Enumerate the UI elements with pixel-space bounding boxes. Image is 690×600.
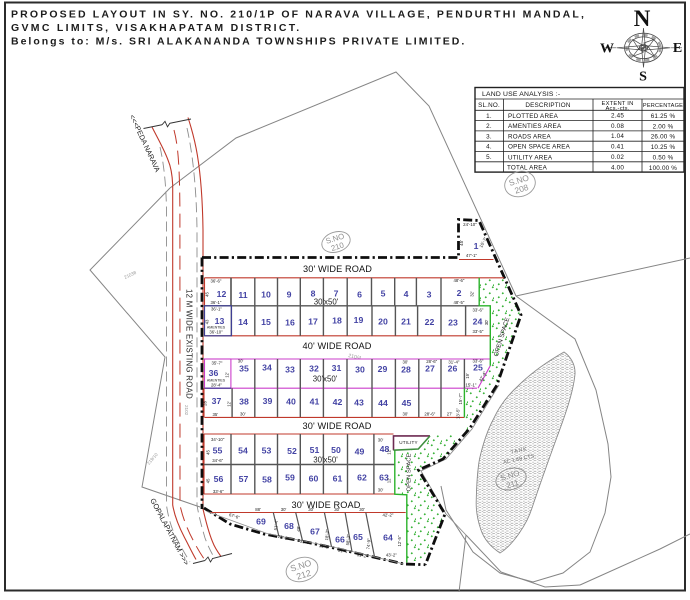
svg-text:30' WIDE ROAD: 30' WIDE ROAD	[303, 264, 372, 274]
svg-text:19': 19'	[465, 373, 470, 379]
svg-text:12': 12'	[225, 372, 230, 378]
svg-text:36'-6": 36'-6"	[211, 279, 222, 284]
svg-text:DESCRIPTION: DESCRIPTION	[525, 102, 570, 109]
svg-text:30': 30'	[402, 412, 408, 417]
svg-text:33'-5": 33'-5"	[473, 329, 484, 334]
svg-text:12': 12'	[227, 401, 232, 407]
svg-text:2102: 2102	[184, 405, 189, 416]
svg-text:28: 28	[401, 365, 411, 375]
svg-text:30': 30'	[240, 412, 246, 417]
svg-text:2: 2	[457, 288, 462, 298]
svg-text:24: 24	[473, 317, 483, 327]
svg-text:45: 45	[206, 478, 211, 483]
svg-text:45': 45'	[459, 240, 464, 246]
svg-text:28'-6": 28'-6"	[424, 412, 435, 417]
svg-text:30': 30'	[308, 507, 314, 512]
svg-text:45: 45	[402, 398, 412, 408]
svg-text:48'-6": 48'-6"	[454, 278, 465, 283]
svg-text:28'-4": 28'-4"	[211, 383, 222, 388]
svg-text:30: 30	[355, 365, 365, 375]
svg-text:26.00 %: 26.00 %	[651, 133, 676, 140]
svg-text:100.00 %: 100.00 %	[649, 165, 677, 172]
svg-text:66: 66	[335, 535, 345, 545]
svg-text:17: 17	[308, 317, 318, 327]
svg-text:30': 30'	[281, 507, 287, 512]
svg-text:41: 41	[310, 397, 320, 407]
svg-text:45: 45	[205, 292, 210, 297]
svg-text:61.25 %: 61.25 %	[651, 113, 676, 120]
svg-text:12'-5": 12'-5"	[397, 535, 402, 546]
svg-text:38: 38	[239, 397, 249, 407]
svg-text:33'-6": 33'-6"	[473, 308, 484, 313]
svg-text:14: 14	[238, 317, 248, 327]
svg-text:51: 51	[310, 445, 320, 455]
svg-text:33'-6": 33'-6"	[473, 359, 484, 364]
svg-text:53: 53	[262, 446, 272, 456]
svg-text:45: 45	[206, 450, 211, 455]
svg-text:37: 37	[212, 396, 222, 406]
svg-text:30' WIDE ROAD: 30' WIDE ROAD	[303, 421, 372, 431]
svg-text:42'-2": 42'-2"	[383, 513, 394, 518]
svg-text:ROADS AREA: ROADS AREA	[508, 133, 552, 140]
svg-text:11: 11	[238, 290, 247, 300]
svg-text:12': 12'	[387, 478, 392, 484]
svg-text:2.00 %: 2.00 %	[653, 124, 674, 131]
svg-text:29: 29	[378, 364, 388, 374]
svg-text:18'-2": 18'-2"	[324, 529, 330, 541]
svg-text:TOTAL AREA: TOTAL AREA	[507, 165, 548, 172]
svg-text:34: 34	[262, 363, 272, 373]
svg-text:12: 12	[217, 289, 227, 299]
svg-text:28'-6": 28'-6"	[426, 359, 437, 364]
svg-text:13: 13	[215, 316, 225, 326]
svg-text:36'-1": 36'-1"	[211, 300, 222, 305]
svg-text:54: 54	[238, 446, 248, 456]
svg-text:E: E	[673, 41, 682, 56]
svg-text:12 M WIDE EXISTING ROAD: 12 M WIDE EXISTING ROAD	[185, 289, 194, 399]
svg-text:24'-10": 24'-10"	[463, 222, 477, 227]
svg-text:61: 61	[333, 474, 343, 484]
svg-text:68: 68	[284, 521, 294, 531]
svg-text:S: S	[639, 70, 647, 85]
svg-text:31: 31	[332, 363, 342, 373]
svg-text:40' WIDE ROAD: 40' WIDE ROAD	[303, 341, 372, 351]
svg-text:22: 22	[425, 317, 435, 327]
svg-text:4.00: 4.00	[611, 164, 624, 171]
svg-text:3: 3	[427, 290, 432, 300]
svg-text:58'-3": 58'-3"	[345, 534, 351, 546]
svg-text:W: W	[600, 42, 614, 57]
svg-text:52: 52	[287, 446, 297, 456]
svg-text:0.41: 0.41	[611, 143, 624, 150]
svg-text:43: 43	[354, 398, 364, 408]
svg-text:12': 12'	[387, 449, 392, 455]
svg-text:30'x50': 30'x50'	[313, 375, 338, 384]
svg-text:27': 27'	[447, 412, 453, 417]
svg-text:30'x50': 30'x50'	[314, 298, 339, 307]
svg-text:88': 88'	[255, 507, 261, 512]
svg-text:51'-4": 51'-4"	[273, 519, 279, 531]
svg-text:AMENTIES AREA: AMENTIES AREA	[508, 123, 562, 130]
svg-text:4.: 4.	[486, 143, 492, 150]
svg-text:35': 35'	[212, 412, 218, 417]
svg-text:N: N	[634, 6, 651, 31]
svg-text:27: 27	[425, 364, 435, 374]
svg-text:0.08: 0.08	[611, 123, 624, 130]
svg-text:49: 49	[355, 447, 365, 457]
svg-text:1.: 1.	[486, 113, 492, 120]
svg-text:34'-10": 34'-10"	[211, 437, 225, 442]
svg-text:31'-4": 31'-4"	[448, 360, 459, 365]
svg-text:1.04: 1.04	[611, 133, 624, 140]
svg-text:36'-10": 36'-10"	[209, 330, 223, 335]
svg-text:GVMC LIMITS, VISAKHAPATAM DIST: GVMC LIMITS, VISAKHAPATAM DISTRICT.	[11, 22, 302, 34]
svg-text:40: 40	[286, 397, 296, 407]
svg-text:48': 48'	[296, 526, 301, 532]
svg-text:30'x50': 30'x50'	[313, 456, 338, 465]
svg-text:5.: 5.	[486, 154, 492, 161]
svg-text:PERCENTAGE: PERCENTAGE	[643, 103, 683, 109]
svg-text:60: 60	[309, 474, 319, 484]
svg-text:21: 21	[401, 317, 411, 327]
svg-text:62: 62	[357, 473, 367, 483]
svg-text:PROPOSED LAYOUT IN SY. NO. 210: PROPOSED LAYOUT IN SY. NO. 210/1P OF NAR…	[11, 8, 586, 20]
svg-text:UTILITY: UTILITY	[399, 440, 418, 445]
svg-text:15: 15	[261, 317, 271, 327]
svg-text:39: 39	[263, 396, 273, 406]
svg-text:42: 42	[333, 397, 343, 407]
svg-text:65: 65	[353, 532, 363, 542]
svg-text:30': 30'	[378, 488, 384, 493]
svg-text:15'-1": 15'-1"	[466, 383, 477, 388]
svg-text:0.50 %: 0.50 %	[653, 155, 674, 162]
svg-text:26: 26	[448, 364, 458, 374]
svg-text:OPEN SPACE AREA: OPEN SPACE AREA	[508, 144, 571, 151]
svg-text:36'-1": 36'-1"	[211, 307, 222, 312]
svg-text:59: 59	[285, 473, 295, 483]
svg-text:57: 57	[239, 474, 249, 484]
svg-text:UTILITY AREA: UTILITY AREA	[508, 155, 553, 162]
svg-text:19: 19	[354, 315, 364, 325]
svg-text:44: 44	[378, 398, 388, 408]
svg-text:58: 58	[262, 475, 272, 485]
svg-text:PLOTTED AREA: PLOTTED AREA	[508, 113, 559, 120]
svg-text:43'-2": 43'-2"	[386, 553, 397, 558]
svg-text:4: 4	[404, 289, 409, 299]
svg-text:10: 10	[261, 290, 271, 300]
svg-text:23: 23	[448, 318, 458, 328]
svg-text:30': 30'	[484, 320, 489, 326]
svg-text:36: 36	[209, 368, 219, 378]
svg-text:33: 33	[285, 365, 295, 375]
svg-text:30': 30'	[359, 507, 365, 512]
svg-text:30' WIDE ROAD: 30' WIDE ROAD	[292, 500, 361, 510]
svg-text:35: 35	[239, 364, 249, 374]
svg-text:43: 43	[205, 319, 210, 324]
svg-text:55: 55	[213, 446, 223, 456]
svg-text:0.02: 0.02	[611, 154, 624, 161]
svg-text:67: 67	[310, 527, 320, 537]
svg-text:30': 30'	[378, 438, 384, 443]
svg-text:30': 30'	[334, 507, 340, 512]
svg-text:32': 32'	[470, 291, 475, 297]
svg-text:56: 56	[214, 474, 224, 484]
svg-text:16: 16	[285, 318, 295, 328]
svg-text:35'-7": 35'-7"	[212, 361, 223, 366]
svg-text:LAND USE ANALYSIS :-: LAND USE ANALYSIS :-	[482, 91, 560, 98]
svg-text:10.25 %: 10.25 %	[651, 144, 676, 151]
svg-text:30': 30'	[238, 359, 244, 364]
svg-text:74'-9": 74'-9"	[366, 538, 372, 550]
svg-text:3.: 3.	[486, 133, 492, 140]
svg-text:OPEN SPACE: OPEN SPACE	[407, 454, 413, 492]
svg-text:33'-6": 33'-6"	[213, 489, 224, 494]
svg-text:32: 32	[309, 364, 319, 374]
svg-text:47'-1": 47'-1"	[466, 253, 478, 258]
svg-text:28: 28	[203, 401, 208, 406]
svg-text:5: 5	[381, 289, 386, 299]
svg-text:20: 20	[378, 317, 388, 327]
svg-text:SL.NO.: SL.NO.	[478, 102, 500, 109]
svg-text:18: 18	[332, 316, 342, 326]
svg-text:69: 69	[256, 517, 266, 527]
svg-text:15'-7": 15'-7"	[458, 393, 463, 404]
svg-text:64: 64	[383, 533, 393, 543]
svg-text:9: 9	[287, 290, 292, 300]
svg-text:2.: 2.	[486, 123, 492, 130]
svg-text:50: 50	[331, 445, 341, 455]
svg-text:2.45: 2.45	[611, 113, 624, 120]
svg-text:48'-5": 48'-5"	[454, 300, 465, 305]
svg-text:34'-6": 34'-6"	[212, 458, 223, 463]
svg-text:6: 6	[357, 290, 362, 300]
svg-text:25: 25	[473, 363, 483, 373]
svg-text:13'-5": 13'-5"	[456, 408, 461, 419]
svg-text:30': 30'	[402, 360, 408, 365]
svg-text:Acs.-cts.: Acs.-cts.	[605, 106, 629, 112]
svg-text:Belongs to: M/s. SRI ALAKANAND: Belongs to: M/s. SRI ALAKANANDA TOWNSHIP…	[11, 35, 466, 47]
